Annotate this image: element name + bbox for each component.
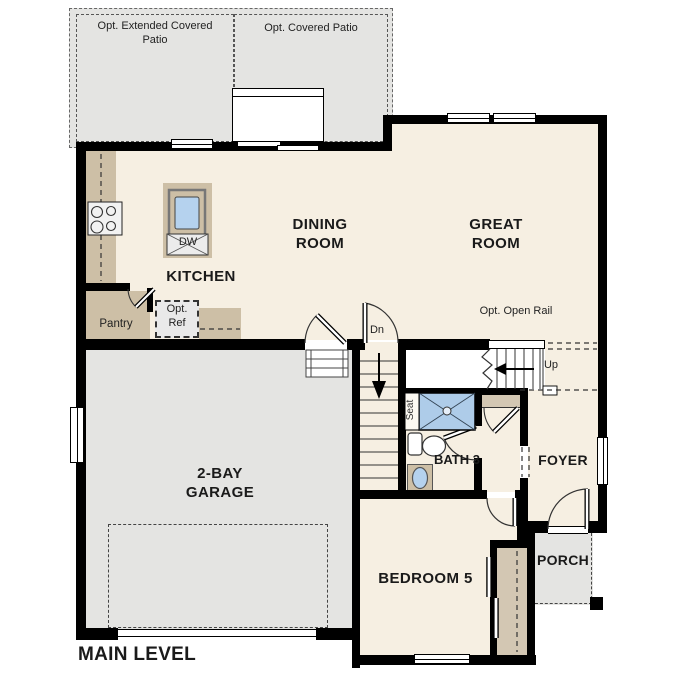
hall-closet-door: [484, 408, 518, 432]
garage-label: 2-BAY GARAGE: [172, 465, 268, 503]
front-door: [548, 489, 588, 529]
cooktop: [88, 202, 122, 235]
pantry-door: [128, 289, 154, 307]
great-room-label: GREAT ROOM: [452, 216, 540, 254]
stairs-down: [360, 353, 398, 478]
patio-extended-label: Opt. Extended Covered Patio: [84, 20, 226, 48]
pantry-label: Pantry: [88, 317, 144, 331]
plan-linework: [0, 0, 687, 687]
opt-ref-label: Opt. Ref: [160, 303, 194, 331]
bedroom-label: BEDROOM 5: [363, 570, 488, 589]
bath-label: BATH 3: [433, 452, 481, 468]
shower-seat-label: Seat: [405, 390, 417, 430]
vanity-sink: [413, 468, 428, 489]
dishwasher-label: DW: [174, 236, 202, 250]
dining-room-label: DINING ROOM: [278, 216, 362, 254]
stairs-down-label: Dn: [364, 324, 390, 338]
island-sink: [169, 190, 205, 235]
main-level-title: MAIN LEVEL: [78, 643, 278, 667]
patio-covered-label: Opt. Covered Patio: [244, 22, 378, 36]
closet-sliding-doors: [489, 557, 496, 638]
foyer-label: FOYER: [532, 452, 594, 470]
bedroom-door: [487, 498, 515, 526]
porch-label: PORCH: [532, 552, 594, 570]
floor-plan: Opt. Extended Covered Patio Opt. Covered…: [0, 0, 687, 687]
garage-steps: [306, 350, 348, 377]
stairs-up-label: Up: [539, 359, 563, 373]
opt-open-rail-label: Opt. Open Rail: [478, 305, 554, 319]
garage-entry-door: [305, 315, 345, 343]
kitchen-label: KITCHEN: [155, 268, 247, 287]
